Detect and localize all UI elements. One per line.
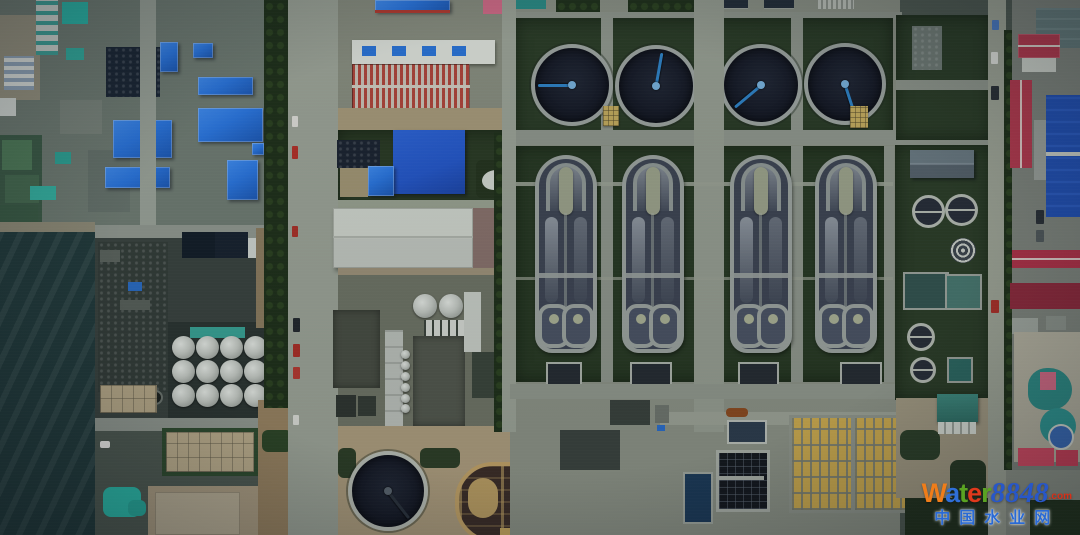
clarifier-tank [720, 44, 802, 126]
small-building [0, 98, 16, 116]
storage-tank [220, 360, 243, 383]
watermark-letter: r [981, 478, 991, 508]
small-building [4, 56, 34, 90]
cross-road [338, 200, 510, 208]
side-road [140, 0, 156, 235]
dark-shed [358, 396, 376, 416]
dark-basin-block [413, 336, 465, 426]
blue-roof-building [105, 167, 170, 188]
roof-ridge [1018, 45, 1060, 47]
colonnade-building [424, 320, 466, 336]
clarifier-hub [757, 81, 765, 89]
truck [292, 146, 298, 159]
truck [293, 344, 300, 357]
west-road [502, 0, 516, 432]
storage-tank [172, 360, 195, 383]
aeration-basin [535, 155, 597, 353]
foam-streak [661, 217, 674, 303]
foam-streak [574, 217, 587, 303]
round-pool [1048, 424, 1074, 450]
blue-equipment [657, 425, 665, 431]
lane-divider [759, 213, 762, 307]
roof-ridge [1012, 258, 1080, 260]
storage-tank [172, 336, 195, 359]
small-clarifier [910, 357, 936, 383]
basin-divider [839, 167, 853, 215]
clarifier-bridge [387, 491, 410, 520]
blue-roof-building [252, 143, 264, 155]
storage-tank [220, 336, 243, 359]
ditch-end-cap [468, 478, 498, 518]
truck [292, 226, 298, 237]
teal-pools [516, 0, 546, 9]
clarifier-tank [348, 451, 428, 531]
car [100, 441, 110, 448]
car [991, 52, 998, 64]
lane-divider [844, 213, 847, 307]
pink-roof-building [1056, 450, 1078, 466]
small-tank [401, 361, 410, 370]
center-road [694, 0, 724, 432]
blue-roof-factory [1046, 95, 1080, 217]
clarifier-tank [531, 44, 613, 126]
skylight [452, 46, 466, 56]
white-building [1022, 58, 1056, 72]
hip-roof-building [910, 150, 974, 178]
pink-building [1040, 372, 1056, 390]
pond [2, 140, 32, 170]
aeration-basin [815, 155, 877, 353]
blue-roof-building [198, 108, 263, 142]
van [1036, 230, 1044, 242]
foam-streak [632, 217, 645, 303]
equipment-block [120, 300, 150, 310]
small-clarifier [912, 195, 945, 228]
watermark: Water8848.com 中国水业网 [922, 479, 1072, 527]
main-road [288, 0, 338, 535]
u-turn-channel [649, 304, 681, 348]
watermark-letter: W [922, 478, 945, 508]
rust-patch [726, 408, 748, 417]
blue-roof-building [198, 77, 253, 95]
clarifier-hub [568, 81, 576, 89]
truck [991, 300, 999, 313]
basin-divider [754, 167, 768, 215]
scrub-patch [420, 448, 460, 468]
basin-bridge [625, 273, 681, 278]
watermark-subtitle: 中国水业网 [922, 511, 1072, 527]
dark-shed [336, 395, 356, 417]
watermark-number: 8848 [991, 477, 1049, 509]
basin-divider [559, 167, 573, 215]
equipment-hut [850, 106, 868, 128]
foam-streak [769, 217, 782, 303]
lane-divider [651, 213, 654, 307]
white-building [464, 292, 481, 352]
small-tank [401, 372, 410, 381]
royal-blue-roof [393, 130, 465, 194]
van [1036, 210, 1044, 224]
dark-flat-building [764, 0, 794, 9]
car [292, 116, 298, 127]
dirt-road [338, 108, 510, 132]
small-clarifier [945, 194, 978, 226]
roof-ridge [1020, 80, 1022, 168]
basin-bridge [538, 273, 594, 278]
pink-roof-building [1018, 448, 1054, 466]
storage-tank [172, 384, 195, 407]
building-facade [938, 422, 976, 434]
navy-panel-roof [215, 232, 248, 258]
striped-tank [950, 238, 976, 263]
clarifier-hub [384, 487, 392, 495]
teal-tarp [62, 2, 88, 24]
roof-gap [1046, 152, 1080, 156]
car [293, 415, 299, 425]
truck [293, 318, 300, 332]
truck [991, 86, 999, 100]
aeration-basin [730, 155, 792, 353]
scrub-patch [900, 430, 940, 460]
aerial-photo: Water8848.com 中国水业网 [0, 0, 1080, 535]
clarifier-bridge [538, 84, 572, 87]
equipment-block [100, 250, 120, 262]
foam-streak [825, 217, 838, 303]
skylight [362, 46, 376, 56]
roof-seam [352, 85, 470, 88]
teal-square-basin [947, 357, 973, 383]
blue-roof-building [227, 160, 258, 200]
storage-tank [220, 384, 243, 407]
teal-tarp [55, 152, 71, 164]
path [896, 80, 992, 90]
clarifier-tank [804, 43, 886, 125]
blue-frame-building [727, 420, 767, 444]
pool-basin [683, 472, 713, 524]
clarifier-hub [652, 82, 660, 90]
teal-basin [945, 274, 982, 310]
red-eave [375, 10, 450, 13]
dark-basin-block [333, 310, 380, 388]
foam-streak [545, 217, 558, 303]
panel-frame [716, 476, 764, 480]
headworks-equipment [912, 26, 942, 70]
skylight [392, 46, 406, 56]
teal-basin [903, 272, 949, 310]
tree-line [264, 0, 288, 408]
storage-tank [196, 360, 219, 383]
small-tank [401, 394, 410, 403]
foam-streak [740, 217, 753, 303]
clarifier-hub [841, 80, 849, 88]
foam-streak [854, 217, 867, 303]
basin-bridge [818, 273, 874, 278]
small-tank [401, 350, 410, 359]
small-clarifier [907, 323, 935, 351]
lane-divider [564, 213, 567, 307]
process-plant [98, 242, 168, 392]
filter-beds [789, 415, 854, 513]
equipment-hut [603, 106, 619, 126]
basin-divider [646, 167, 660, 215]
tan-roof-warehouse [166, 432, 254, 472]
watermark-letter: a [945, 478, 959, 508]
roof-ridge [333, 236, 473, 238]
truck [293, 367, 300, 379]
teal-tarp [30, 186, 56, 200]
tan-roof-building [100, 385, 157, 413]
blue-roof-building [368, 166, 394, 196]
u-turn-channel [757, 304, 789, 348]
watermark-letter: t [959, 478, 967, 508]
shoreline [0, 222, 95, 232]
dark-patch [560, 430, 620, 470]
aeration-basin [622, 155, 684, 353]
warehouse-roof [333, 208, 473, 268]
u-turn-channel [842, 304, 874, 348]
navy-panel-roof [182, 232, 215, 258]
teal-tarp [66, 48, 84, 60]
navy-roof-building [337, 140, 380, 168]
solar-panel-building [716, 450, 770, 512]
pavement-patch [60, 100, 102, 134]
digester-tank [413, 294, 437, 318]
dark-red-building [1010, 283, 1080, 309]
storage-tank [196, 384, 219, 407]
tan-lot [340, 168, 368, 197]
gray-building [1034, 120, 1046, 180]
teal-tarp-pile [128, 500, 146, 516]
watermark-tld: .com [1049, 491, 1072, 502]
light-building [155, 492, 240, 535]
tree-line [494, 132, 502, 432]
blue-roof-building [193, 43, 213, 58]
tree-cluster [556, 0, 600, 12]
skylight [422, 46, 436, 56]
teal-roof-building [937, 394, 978, 422]
striped-building [818, 0, 854, 9]
storage-tank [196, 336, 219, 359]
clarifier-tank [615, 45, 697, 127]
tidal-flat [0, 228, 95, 535]
watermark-letter: e [967, 478, 981, 508]
gray-building [1046, 316, 1066, 330]
small-tank [401, 404, 410, 413]
watermark-brand: Water8848.com [922, 479, 1072, 508]
dark-patch [610, 400, 650, 425]
u-turn-channel [562, 304, 594, 348]
blue-equipment [128, 282, 142, 291]
small-tank [401, 383, 410, 392]
basin-bridge [733, 273, 789, 278]
blue-roof-building [160, 42, 178, 72]
long-building [36, 0, 58, 55]
lawn [896, 15, 992, 140]
digester-tank [439, 294, 463, 318]
equipment-shed [655, 405, 669, 423]
car [992, 20, 999, 30]
